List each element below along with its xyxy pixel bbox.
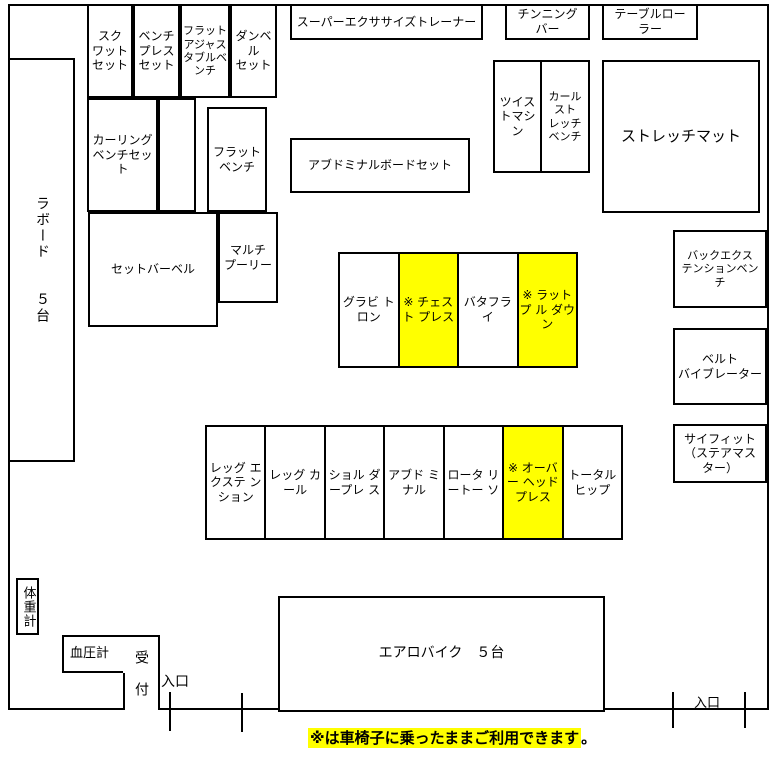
area-set-barbell: セットバーベル: [88, 212, 218, 327]
machine-cell-leg-curl-label: レッグ カール: [266, 468, 323, 497]
area-laboard: ラボード ５台: [8, 58, 75, 462]
machine-cell-lat-pulldown: ※ ラットプ ル ダウン: [517, 254, 577, 366]
area-flat-adjustable-bench-label: フラット アジャス タブルベ ンチ: [183, 24, 227, 78]
area-multi-pulley-label: マルチ プーリー: [224, 243, 272, 272]
area-aero-bike-label: エアロバイク ５台: [379, 645, 505, 662]
area-squat-set-label: スク ワット セット: [92, 29, 128, 73]
area-flat-bench: フラット ベンチ: [207, 107, 267, 212]
area-blood-pressure: 血圧計: [62, 635, 125, 673]
entrance-left-label: 入口: [161, 671, 189, 691]
machine-cell-butterfly: バタフラ イ: [457, 254, 517, 366]
area-stretch-mat: ストレッチマット: [602, 60, 760, 213]
machine-cell-abdominal-label: アブド ミナル: [385, 468, 442, 497]
machine-row-1: グラビ トロン ※ チェスト プレス バタフラ イ ※ ラットプ ル ダウン: [338, 252, 578, 368]
machine-cell-overhead-press-label: ※ オーバー ヘッド プレス: [504, 461, 561, 505]
area-dumbbell-set-label: ダンベ ル セット: [235, 29, 271, 73]
area-super-exercise-trainer-label: スーパーエクササイズトレーナー: [297, 15, 477, 30]
area-chinning-bar: チンニング バー: [505, 4, 590, 40]
footnote: ※は車椅子に乗ったままご利用できます。: [308, 727, 596, 748]
machine-cell-chest-press: ※ チェスト プレス: [398, 254, 458, 366]
machine-cell-lat-pulldown-label: ※ ラットプ ル ダウン: [519, 288, 577, 332]
entrance-right-tick-2: [744, 692, 746, 728]
area-multi-pulley: マルチ プーリー: [218, 212, 278, 303]
area-abdominal-board-set-label: アブドミナルボードセット: [308, 158, 452, 173]
area-unlabeled-box: [158, 98, 196, 212]
machine-cell-gravitron-label: グラビ トロン: [340, 295, 398, 324]
machine-row-2: レッグ エクステ ンション レッグ カール ショル ダープレ ス アブド ミナル…: [205, 425, 623, 540]
area-aero-bike: エアロバイク ５台: [278, 596, 605, 712]
area-super-exercise-trainer: スーパーエクササイズトレーナー: [290, 4, 483, 40]
machine-cell-butterfly-label: バタフラ イ: [459, 295, 517, 324]
area-curling-bench-set: カーリング ベンチセッ ト: [87, 98, 158, 212]
machine-cell-rotary-torso-label: ロータ リートー ソ: [445, 468, 502, 497]
machine-cell-overhead-press: ※ オーバー ヘッド プレス: [502, 427, 561, 538]
area-abdominal-board-set: アブドミナルボードセット: [290, 138, 470, 193]
area-blood-pressure-label: 血圧計: [70, 646, 109, 662]
machine-cell-rotary-torso: ロータ リートー ソ: [443, 427, 502, 538]
machine-cell-gravitron: グラビ トロン: [340, 254, 398, 366]
area-back-extension-bench-label: バックエクス テンションベン チ: [682, 249, 759, 289]
area-curl-stretch-bench: カール スト レッチ ベンチ: [540, 60, 590, 173]
footnote-highlighted-text: ※は車椅子に乗ったままご利用できます: [308, 728, 581, 748]
area-stretch-mat-label: ストレッチマット: [621, 127, 741, 145]
area-weight-scale-label: 体重計: [20, 586, 36, 628]
entrance-right-label: 入口: [694, 692, 720, 711]
entrance-left-tick-2: [241, 693, 243, 732]
entrance-left-tick-1: [169, 692, 171, 731]
machine-cell-total-hip-label: トータル ヒップ: [564, 468, 621, 497]
entrance-right-tick-1: [672, 692, 674, 728]
area-twist-machine-label: ツイス トマシ ン: [499, 95, 535, 139]
area-belt-vibrator-label: ベルト バイブレーター: [678, 352, 762, 381]
area-flat-adjustable-bench: フラット アジャス タブルベ ンチ: [180, 4, 230, 98]
area-sci-fit-label: サイフィット （ステアマス ター）: [684, 432, 756, 476]
machine-cell-leg-extension: レッグ エクステ ンション: [207, 427, 264, 538]
machine-cell-abdominal: アブド ミナル: [383, 427, 442, 538]
machine-cell-total-hip: トータル ヒップ: [562, 427, 621, 538]
area-bench-press-set: ベンチ プレス セット: [133, 4, 180, 98]
area-table-roller: テーブルロー ラー: [602, 4, 698, 40]
area-dumbbell-set: ダンベ ル セット: [230, 4, 277, 98]
area-chinning-bar-label: チンニング バー: [517, 7, 577, 36]
area-laboard-label: ラボード ５台: [33, 196, 50, 324]
machine-cell-leg-curl: レッグ カール: [264, 427, 323, 538]
area-set-barbell-label: セットバーベル: [111, 262, 195, 277]
area-belt-vibrator: ベルト バイブレーター: [673, 328, 767, 405]
area-curling-bench-set-label: カーリング ベンチセッ ト: [92, 133, 152, 177]
area-sci-fit: サイフィット （ステアマス ター）: [673, 424, 767, 483]
area-reception: 受 付: [123, 635, 160, 710]
machine-cell-shoulder-press-label: ショル ダープレ ス: [326, 468, 383, 497]
area-squat-set: スク ワット セット: [87, 4, 133, 98]
area-weight-scale: 体重計: [16, 578, 39, 635]
area-flat-bench-label: フラット ベンチ: [213, 145, 261, 174]
area-bench-press-set-label: ベンチ プレス セット: [138, 29, 174, 73]
machine-cell-shoulder-press: ショル ダープレ ス: [324, 427, 383, 538]
area-twist-machine: ツイス トマシ ン: [493, 60, 542, 173]
area-reception-label: 受 付: [132, 650, 149, 698]
area-back-extension-bench: バックエクス テンションベン チ: [673, 230, 767, 308]
machine-cell-chest-press-label: ※ チェスト プレス: [400, 295, 458, 324]
reception-inner-wall: [123, 673, 125, 710]
machine-cell-leg-extension-label: レッグ エクステ ンション: [207, 461, 264, 505]
area-curl-stretch-bench-label: カール スト レッチ ベンチ: [549, 90, 582, 144]
footnote-period: 。: [581, 729, 596, 747]
area-table-roller-label: テーブルロー ラー: [614, 7, 685, 36]
